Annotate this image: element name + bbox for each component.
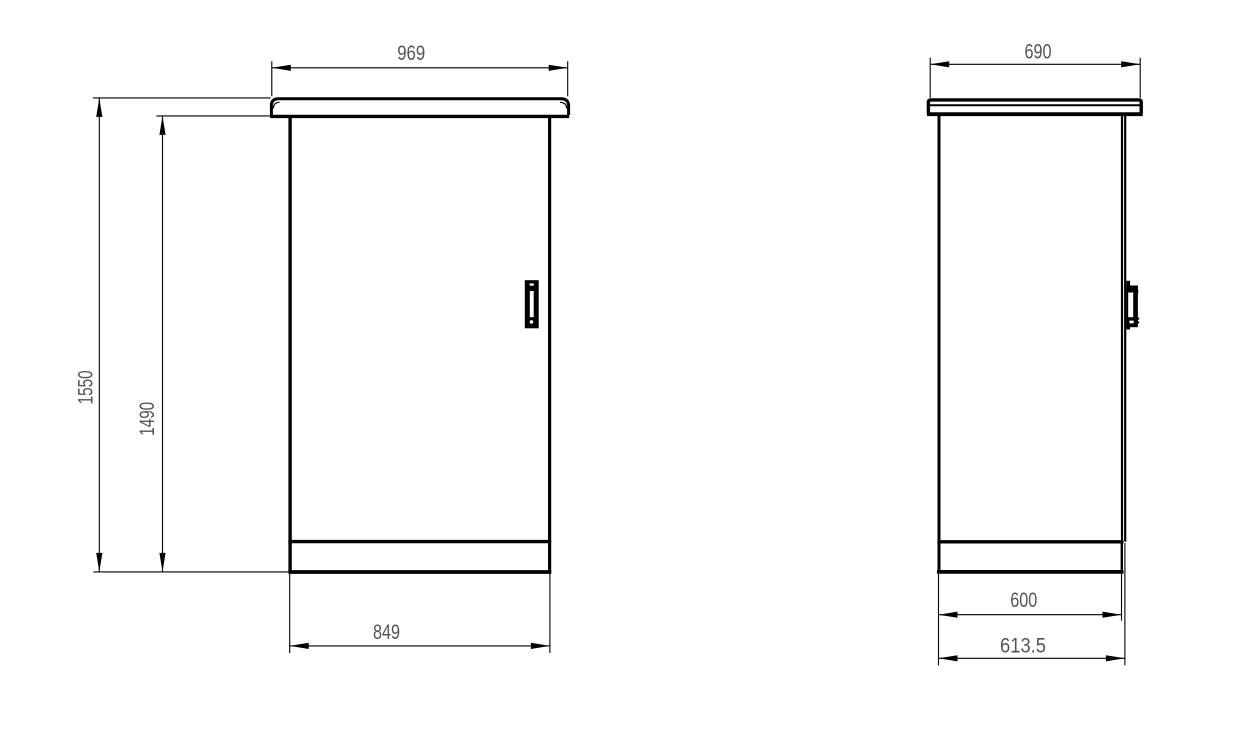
svg-text:849: 849 [373, 620, 400, 644]
svg-text:1490: 1490 [135, 402, 159, 436]
svg-text:1550: 1550 [74, 370, 98, 404]
svg-text:969: 969 [397, 41, 425, 65]
svg-text:600: 600 [1010, 588, 1037, 612]
svg-text:613.5: 613.5 [1000, 633, 1046, 657]
svg-text:690: 690 [1025, 39, 1052, 63]
